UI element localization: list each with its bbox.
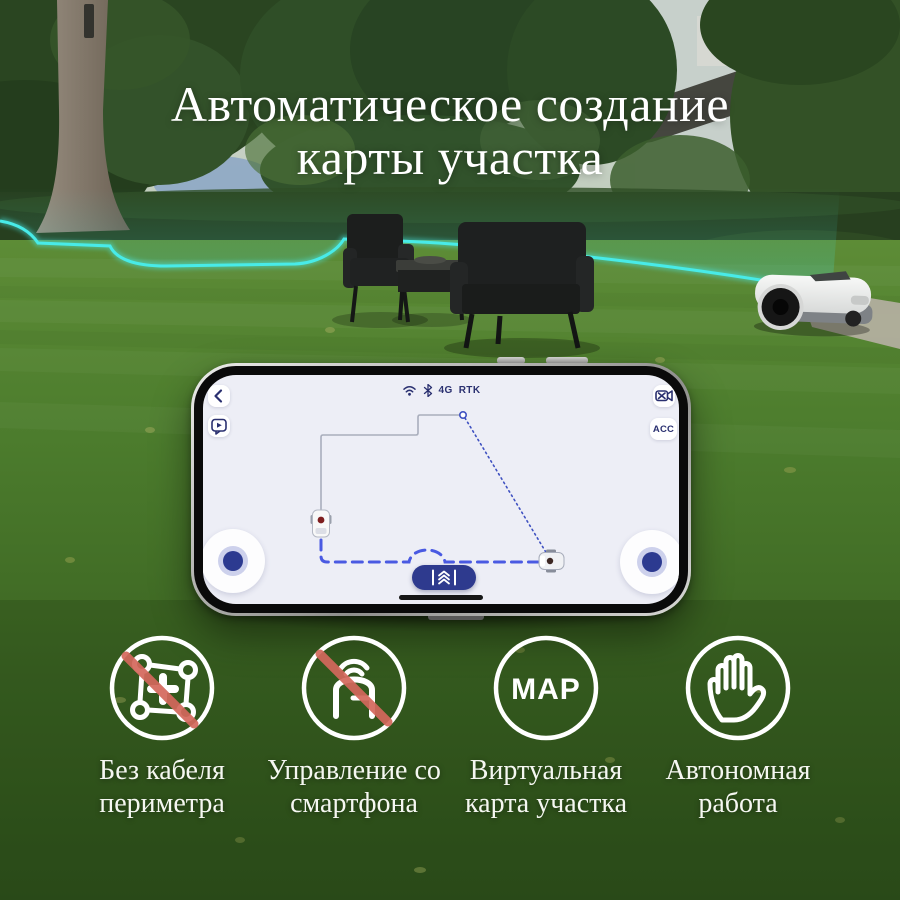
marketing-banner: Автоматическое создание карты участка 4G	[0, 0, 900, 900]
banner-title: Автоматическое создание карты участка	[0, 78, 900, 184]
right-joystick-knob[interactable]	[642, 552, 662, 572]
feature-label: Без кабеляпериметра	[99, 754, 225, 820]
dotted-leg-path	[465, 418, 550, 559]
app-screen: 4G RTK	[203, 375, 679, 604]
home-indicator[interactable]	[399, 595, 483, 600]
left-joystick-ring	[218, 546, 248, 576]
no-perimeter-wire-icon	[106, 632, 218, 744]
right-joystick-ring	[637, 547, 667, 577]
route-dashed-path	[321, 540, 538, 562]
title-line-2: карты участка	[0, 131, 900, 184]
feature-smartphone-control: Управление сосмартфона	[259, 632, 449, 820]
feature-virtual-map: MAP Виртуальнаякарта участка	[451, 632, 641, 820]
smartphone-mockup: 4G RTK	[191, 363, 691, 616]
feature-no-perimeter-cable: Без кабеляпериметра	[67, 632, 257, 820]
map-badge-text: MAP	[511, 673, 581, 706]
right-joystick[interactable]	[620, 530, 679, 594]
vertex-marker	[460, 412, 466, 418]
feature-autonomous-work: Автономнаяработа	[643, 632, 833, 820]
boundary-path	[321, 415, 461, 512]
title-line-1: Автоматическое создание	[0, 78, 900, 131]
red-slash	[320, 654, 388, 722]
left-joystick-knob[interactable]	[223, 551, 243, 571]
feature-label: Автономнаяработа	[665, 754, 810, 820]
phone-bezel: 4G RTK	[194, 366, 688, 613]
no-base-station-icon	[298, 632, 410, 744]
edge-follow-icon	[429, 569, 459, 586]
feature-label: Управление сосмартфона	[267, 754, 441, 820]
hand-icon	[682, 632, 794, 744]
map-badge-icon: MAP	[490, 632, 602, 744]
left-joystick[interactable]	[203, 529, 265, 593]
feature-label: Виртуальнаякарта участка	[465, 754, 627, 820]
feature-row: Без кабеляпериметра Управление сосмартфо…	[0, 632, 900, 820]
mower-current-marker	[539, 550, 564, 573]
robot-mower	[754, 268, 874, 338]
mapping-mode-button[interactable]	[412, 565, 476, 590]
mower-start-marker	[311, 510, 332, 537]
